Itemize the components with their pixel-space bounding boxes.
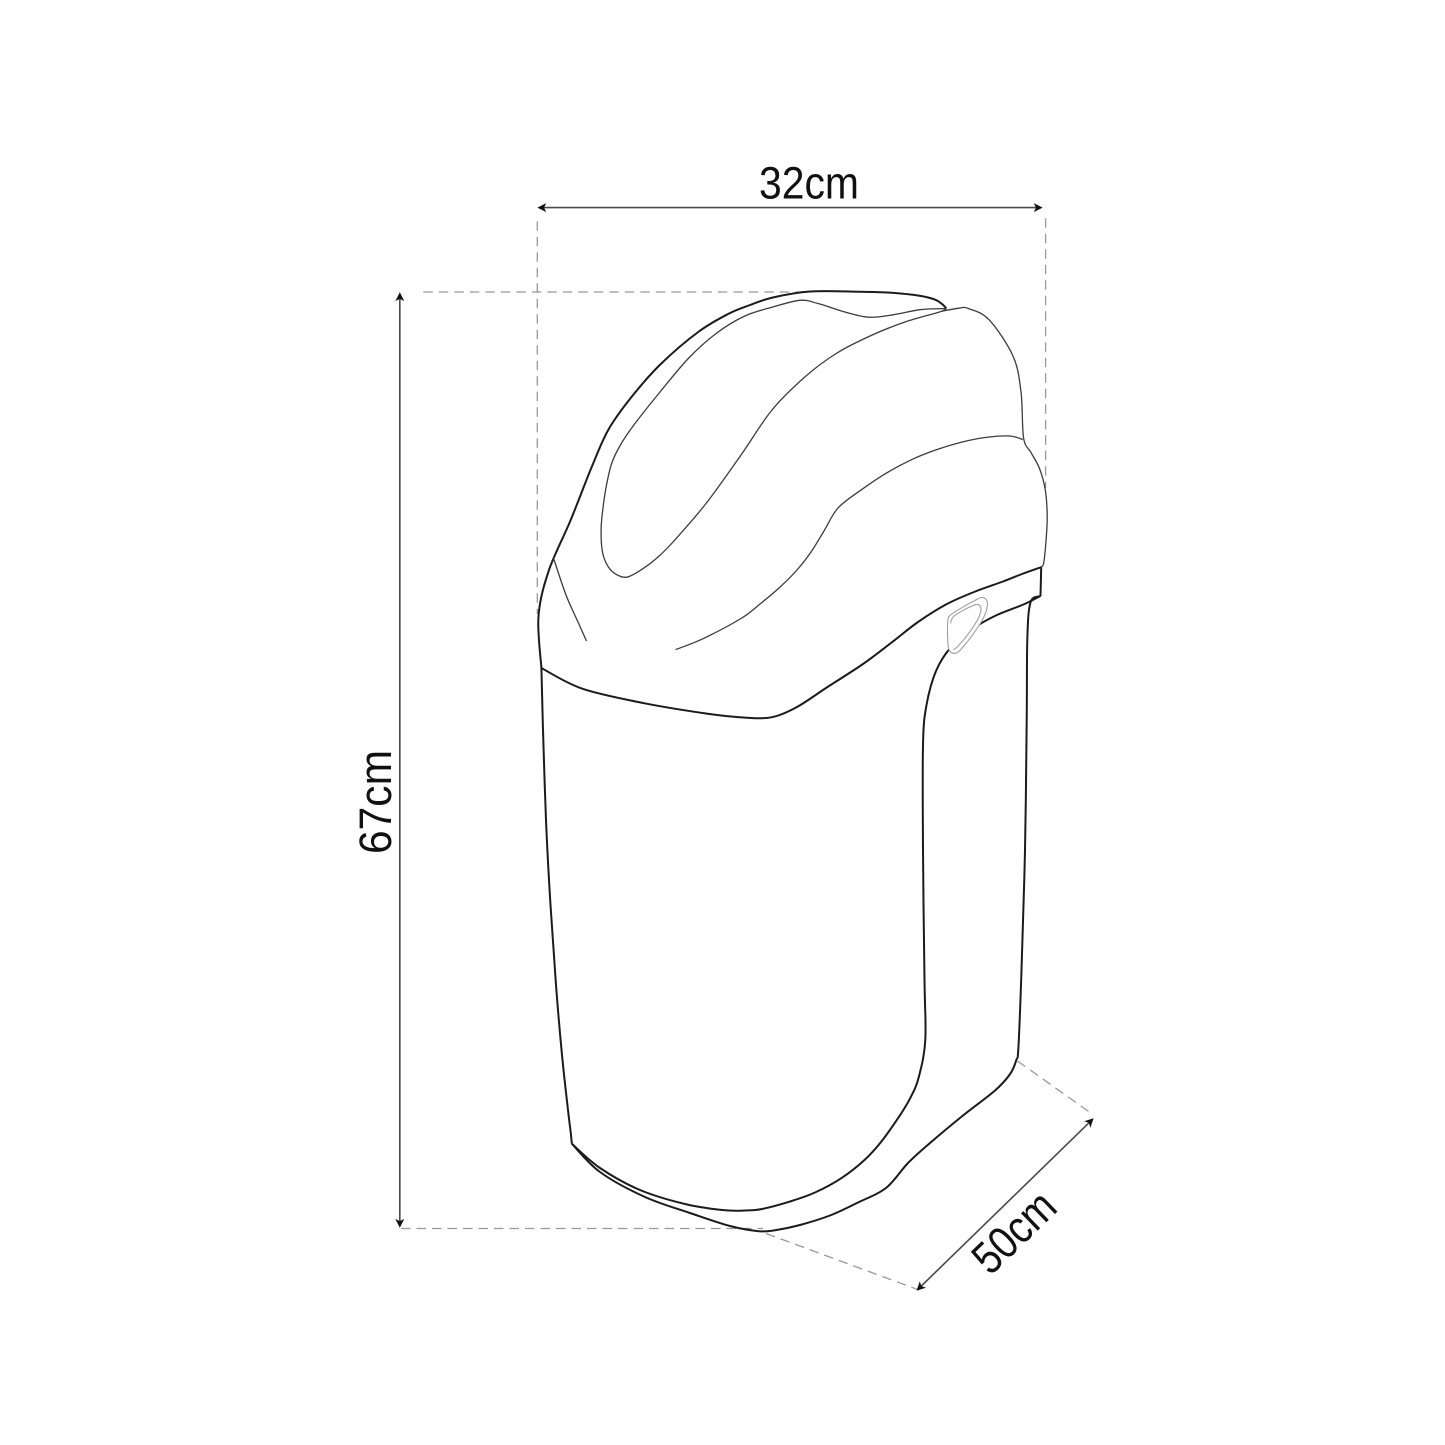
svg-text:50cm: 50cm — [962, 1180, 1066, 1283]
svg-text:67cm: 67cm — [350, 750, 401, 854]
svg-text:32cm: 32cm — [759, 158, 859, 209]
